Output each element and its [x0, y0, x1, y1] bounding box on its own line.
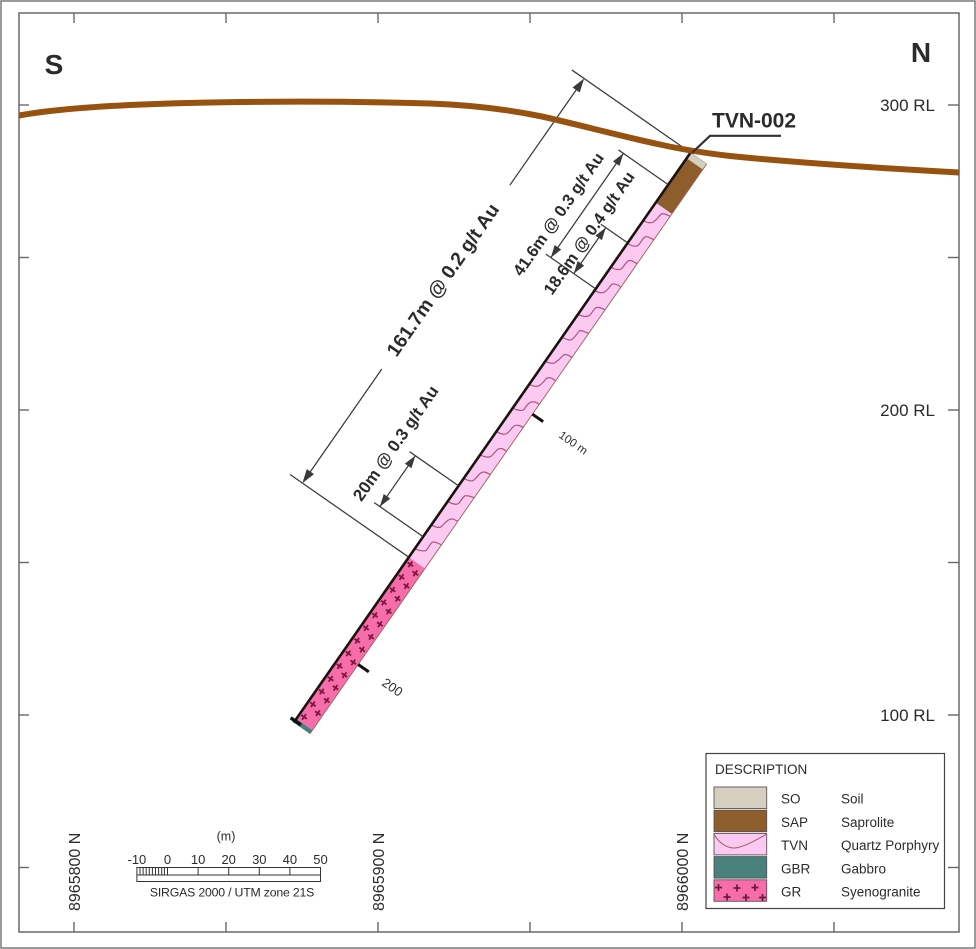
svg-text:0: 0: [164, 852, 171, 867]
svg-text:Syenogranite: Syenogranite: [841, 885, 921, 900]
svg-text:TVN-002: TVN-002: [712, 110, 796, 133]
svg-text:10: 10: [191, 852, 205, 867]
svg-text:Saprolite: Saprolite: [841, 815, 894, 830]
svg-text:8966000 N: 8966000 N: [675, 833, 692, 911]
svg-text:GR: GR: [781, 885, 802, 900]
svg-text:30: 30: [252, 852, 266, 867]
svg-text:DESCRIPTION: DESCRIPTION: [715, 762, 807, 777]
svg-text:50: 50: [313, 852, 327, 867]
svg-text:TVN: TVN: [781, 838, 808, 853]
svg-text:Soil: Soil: [841, 792, 864, 807]
svg-text:100 RL: 100 RL: [880, 706, 935, 725]
svg-text:40: 40: [283, 852, 297, 867]
svg-text:8965800 N: 8965800 N: [67, 833, 84, 911]
svg-text:200 RL: 200 RL: [880, 401, 935, 420]
svg-text:8965900 N: 8965900 N: [371, 833, 388, 911]
svg-text:S: S: [45, 49, 64, 80]
svg-text:SAP: SAP: [781, 815, 808, 830]
svg-text:GBR: GBR: [781, 861, 811, 876]
svg-text:Quartz Porphyry: Quartz Porphyry: [841, 838, 940, 853]
svg-text:20: 20: [221, 852, 235, 867]
svg-text:SIRGAS 2000 / UTM zone 21S: SIRGAS 2000 / UTM zone 21S: [150, 886, 314, 900]
svg-text:Gabbro: Gabbro: [841, 861, 886, 876]
svg-text:(m): (m): [217, 830, 236, 844]
svg-text:SO: SO: [781, 792, 801, 807]
svg-text:N: N: [911, 37, 931, 68]
svg-text:300 RL: 300 RL: [880, 96, 935, 115]
svg-text:-10: -10: [128, 852, 147, 867]
